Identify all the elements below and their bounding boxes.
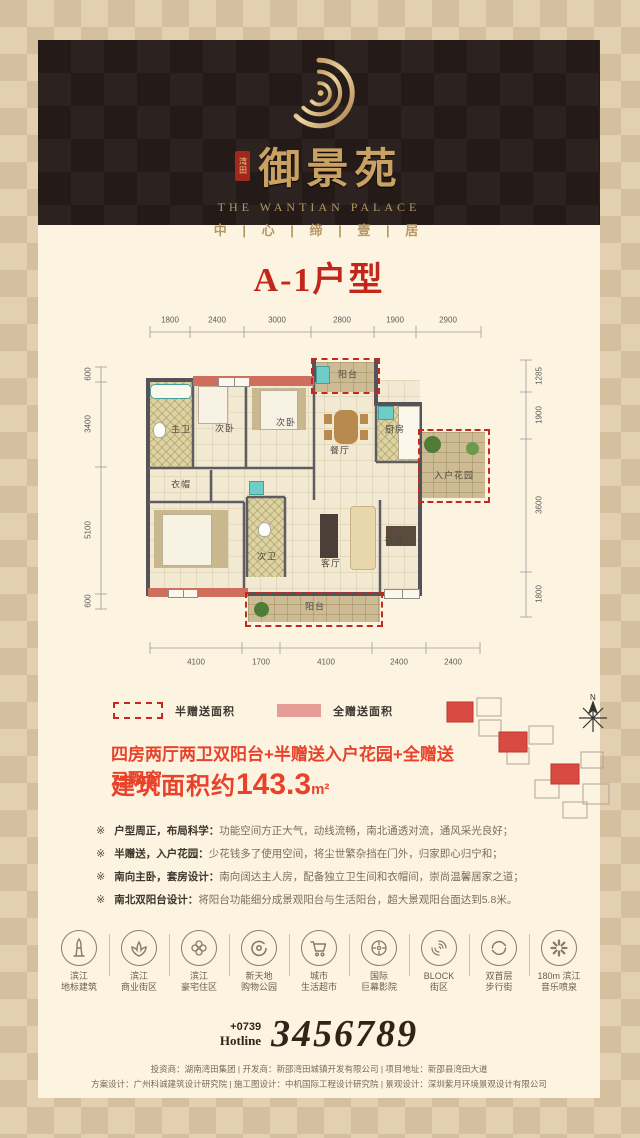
amenity-label: 城市 [292,971,347,982]
red-wall-band-bottom [148,588,248,597]
cart-icon [301,930,337,966]
amenities-row: 滨江地标建筑 滨江商业街区 滨江豪宅住区 新天地购物公园 [38,930,600,993]
hotline: +0739 Hotline 3456789 [38,1012,600,1056]
window-symbol [218,377,250,387]
page-title: A-1户型 [38,252,600,301]
floor-plan: 主卫 次卧 次卧 阳台 餐厅 厨房 入户花园 衣帽 次卫 客厅 书房 阳台 18… [58,310,578,670]
separator [229,934,230,976]
amenity-label: 滨江 [172,971,227,982]
bathtub [150,384,192,399]
room-label-balcony-top: 阳台 [338,368,358,381]
separator [349,934,350,976]
compass-icon [579,702,607,732]
window-symbol [168,589,198,598]
room-label-kitchen: 厨房 [385,423,405,436]
amenity-label: 地标建筑 [52,982,107,993]
room-label-closet: 衣帽 [171,478,191,491]
amenity-label: 音乐喷泉 [532,982,587,993]
built-area-unit: m² [311,781,329,798]
amenity-walking-street: 双首层步行街 [472,930,527,993]
half-gift-swatch [113,702,163,719]
amenity-label: 新天地 [232,971,287,982]
room-label-entry-garden: 入户花园 [434,469,474,482]
amenity-label: 双首层 [472,971,527,982]
footer-line: 投资商：湖南湾田集团 | 开发商：新邵湾田城镇开发有限公司 | 项目地址：新邵县… [38,1062,600,1077]
amenity-label: 生活超市 [292,982,347,993]
amenity-label: BLOCK [412,971,467,982]
dim-left: 600 [84,594,93,607]
dim-bottom: 4100 [187,658,205,667]
area-legend: 半赠送面积 全赠送面积 [113,702,393,719]
amenity-label: 滨江 [52,971,107,982]
amenity-label: 巨幕影院 [352,982,407,993]
room-label-study: 书房 [384,534,404,547]
built-area-prefix: 建筑面积约 [111,773,236,800]
flower-icon [181,930,217,966]
toilet [153,422,166,438]
separator [409,934,410,976]
feature-item: ※ 半赠送，入户花园：少花钱多了使用空间，将尘世繁杂挡在门外，归家即心归宁和； [96,847,556,861]
amenity-landmark: 滨江地标建筑 [52,930,107,993]
feature-item: ※ 南向主卧，套房设计：南向阔达主人房，配备独立卫生间和衣帽间，崇尚温馨居家之道… [96,870,556,884]
amenity-label: 街区 [412,982,467,993]
loop-icon [481,930,517,966]
cinema-reel-icon [361,930,397,966]
feature-lead: 户型周正，布局科学： [114,825,219,837]
footer-line: 方案设计：广州科诚建筑设计研究院 | 施工图设计：中机国际工程设计研究院 | 景… [38,1077,600,1092]
amenity-label: 国际 [352,971,407,982]
built-area-value: 143.3 [236,768,311,801]
brand-header: 湾田 御景苑 THE WANTIAN PALACE 中 | 心 | 缔 | 壹 … [38,40,600,225]
bed-master [162,514,212,566]
feature-lead: 半赠送，入户花园： [114,848,209,860]
chair [324,414,332,424]
cloud-ornament-icon [38,52,600,139]
dim-bottom: 2400 [390,658,408,667]
swirl-icon [241,930,277,966]
hotline-number: 3456789 [271,1012,418,1056]
half-gift-label: 半赠送面积 [175,703,235,719]
reference-mark: ※ [96,824,105,838]
teal-fixture [249,481,264,495]
separator [529,934,530,976]
amenity-label: 豪宅住区 [172,982,227,993]
brand-slogan: 中 | 心 | 缔 | 壹 | 居 [38,220,600,239]
dim-top: 3000 [268,316,286,325]
room-label-bedroom2: 次卧 [215,422,235,435]
amenity-cinema: 国际巨幕影院 [352,930,407,993]
reference-mark: ※ [96,870,105,884]
landmark-icon [61,930,97,966]
wings-icon [121,930,157,966]
room-label-second-bath: 次卫 [257,550,277,563]
dining-table [334,410,358,444]
amenity-label: 滨江 [112,971,167,982]
sofa [350,506,376,570]
dim-left: 5100 [84,521,93,539]
amenity-label: 180m 滨江 [532,971,587,982]
dim-right: 3600 [535,496,544,514]
feature-item: ※ 南北双阳台设计：将阳台功能细分成景观阳台与生活阳台，超大景观阳台面达到5.8… [96,893,556,907]
poster-card: 湾田 御景苑 THE WANTIAN PALACE 中 | 心 | 缔 | 壹 … [38,40,600,1098]
dim-left: 600 [84,367,93,380]
footer-credits: 投资商：湖南湾田集团 | 开发商：新邵湾田城镇开发有限公司 | 项目地址：新邵县… [38,1062,600,1092]
chair [360,430,368,440]
red-wall-band-top [193,376,314,386]
room-label-balcony-bottom: 阳台 [305,600,325,613]
amenity-supermarket: 城市生活超市 [292,930,347,993]
reference-mark: ※ [96,893,105,907]
feature-text: 将阳台功能细分成景观阳台与生活阳台，超大景观阳台面达到5.8米。 [198,894,517,906]
full-gift-label: 全赠送面积 [333,703,393,719]
amenity-label: 商业街区 [112,982,167,993]
dim-right: 1800 [535,585,544,603]
dim-bottom: 4100 [317,658,335,667]
amenity-label: 购物公园 [232,982,287,993]
room-label-living: 客厅 [321,557,341,570]
fountain-icon [541,930,577,966]
dashed-area-entry-garden [418,429,490,503]
tv-console [320,514,338,558]
amenity-fountain: 180m 滨江音乐喷泉 [532,930,587,993]
teal-fixture [378,406,394,420]
amenity-commercial: 滨江商业街区 [112,930,167,993]
reference-mark: ※ [96,847,105,861]
brand-name-cn: 御景苑 [258,135,402,196]
feature-list: ※ 户型周正，布局科学：功能空间方正大气，动线流畅，南北通透对流，通风采光良好；… [96,824,556,916]
site-minimap: N [443,692,618,837]
room-label-master-bath: 主卫 [171,423,191,436]
full-gift-swatch [277,704,321,717]
brand-name-en: THE WANTIAN PALACE [38,200,600,215]
dim-top: 1900 [386,316,404,325]
window-symbol [384,589,420,599]
toilet [258,522,271,537]
feature-lead: 南北双阳台设计： [114,894,198,906]
dim-top: 2900 [439,316,457,325]
dim-bottom: 1700 [252,658,270,667]
dim-left: 3400 [84,415,93,433]
built-area-line: 建筑面积约143.3m² [111,766,329,802]
room-label-bedroom3: 次卧 [276,416,296,429]
separator [109,934,110,976]
amenity-residence: 滨江豪宅住区 [172,930,227,993]
chair [324,430,332,440]
separator [469,934,470,976]
hotline-label: Hotline [220,1034,261,1047]
feature-lead: 南向主卧，套房设计： [114,871,219,883]
chair [360,414,368,424]
room-label-dining: 餐厅 [330,444,350,457]
dim-top: 1800 [161,316,179,325]
dim-right: 1285 [535,367,544,385]
dim-bottom: 2400 [444,658,462,667]
dim-right: 1900 [535,406,544,424]
compass-north-label: N [590,693,596,702]
poster-page: { "colors":{"accent_red":"#e8432a","titl… [0,0,640,1138]
amenity-label: 步行街 [472,982,527,993]
brand-seal: 湾田 [235,151,250,181]
separator [289,934,290,976]
separator [169,934,170,976]
feature-text: 南向阔达主人房，配备独立卫生间和衣帽间，崇尚温馨居家之道； [219,871,524,883]
amenity-shopping-park: 新天地购物公园 [232,930,287,993]
bed-small [198,386,228,424]
amenity-block: BLOCK街区 [412,930,467,993]
dim-top: 2800 [333,316,351,325]
feature-text: 少花钱多了使用空间，将尘世繁杂挡在门外，归家即心归宁和； [209,848,503,860]
fingerprint-icon [421,930,457,966]
dim-top: 2400 [208,316,226,325]
